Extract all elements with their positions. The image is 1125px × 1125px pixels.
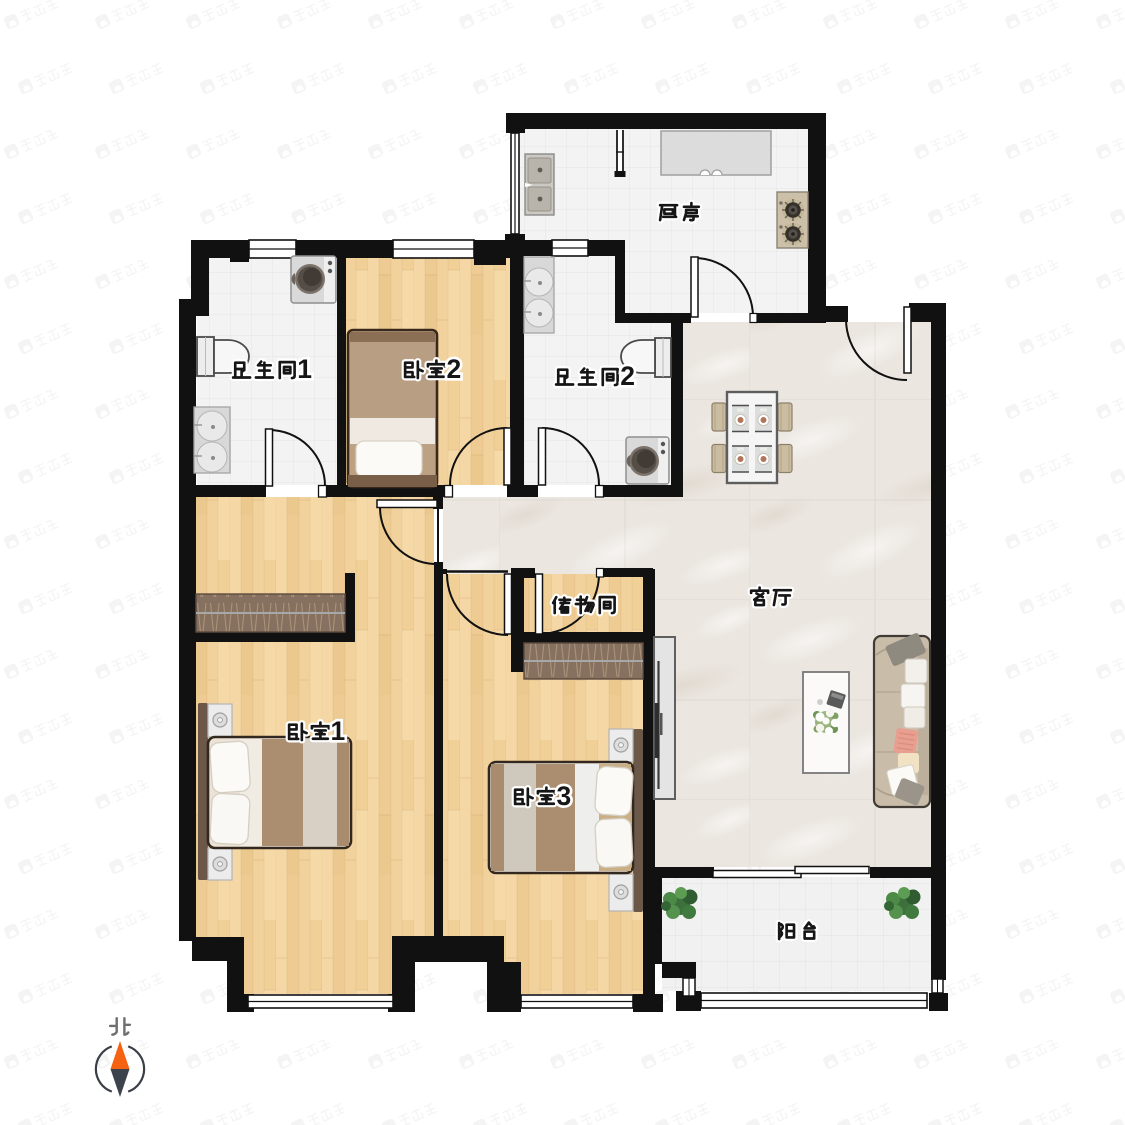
- svg-text:2: 2: [620, 361, 635, 391]
- svg-text:3: 3: [557, 781, 572, 811]
- svg-text:1: 1: [331, 716, 346, 746]
- svg-text:2: 2: [447, 354, 462, 384]
- svg-text:1: 1: [297, 354, 312, 384]
